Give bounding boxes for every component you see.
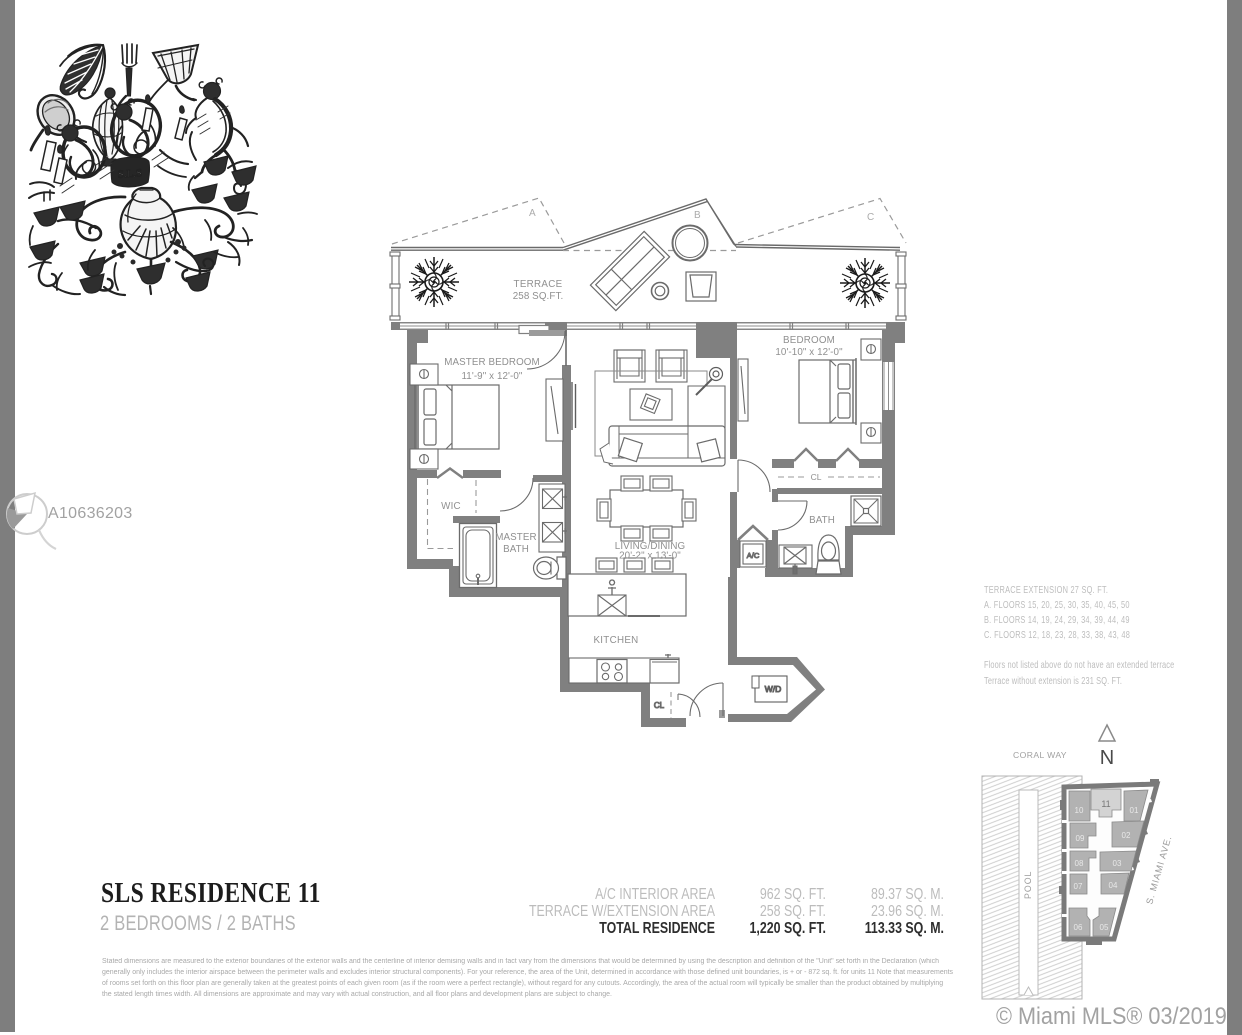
svg-text:11: 11 (1101, 799, 1110, 809)
svg-text:BATH: BATH (503, 544, 529, 555)
svg-text:BEDROOM: BEDROOM (783, 335, 835, 346)
svg-text:W/D: W/D (765, 684, 782, 694)
svg-text:WIC: WIC (441, 501, 461, 512)
svg-text:KITCHEN: KITCHEN (593, 635, 638, 646)
svg-text:10: 10 (1075, 806, 1084, 815)
svg-text:TERRACE: TERRACE (514, 279, 563, 290)
svg-text:MASTER BEDROOM: MASTER BEDROOM (444, 357, 540, 368)
svg-text:C: C (867, 212, 874, 223)
svg-text:06: 06 (1074, 923, 1083, 932)
svg-text:BATH: BATH (809, 515, 835, 526)
svg-text:MASTER: MASTER (495, 532, 536, 543)
svg-text:05: 05 (1100, 923, 1109, 932)
svg-text:POOL: POOL (1023, 871, 1033, 899)
svg-text:CL: CL (811, 472, 822, 482)
svg-text:N: N (1100, 747, 1114, 769)
svg-text:CL: CL (654, 701, 665, 710)
svg-text:CORAL WAY: CORAL WAY (1013, 750, 1067, 760)
svg-text:07: 07 (1074, 882, 1083, 891)
svg-text:S. MIAMI AVE.: S. MIAMI AVE. (1144, 834, 1173, 905)
svg-text:01: 01 (1130, 806, 1139, 815)
svg-text:A: A (529, 208, 536, 219)
svg-text:10'-10" x 12'-0": 10'-10" x 12'-0" (775, 347, 843, 358)
svg-text:11'-9" x 12'-0": 11'-9" x 12'-0" (461, 371, 522, 382)
svg-text:02: 02 (1122, 831, 1131, 840)
svg-text:08: 08 (1075, 859, 1084, 868)
svg-text:A/C: A/C (747, 551, 760, 560)
svg-text:03: 03 (1113, 859, 1122, 868)
svg-text:258 SQ.FT.: 258 SQ.FT. (513, 291, 564, 302)
svg-text:09: 09 (1076, 834, 1085, 843)
svg-text:S.L.S: S.L.S (117, 167, 142, 181)
svg-text:04: 04 (1109, 881, 1118, 890)
svg-text:B: B (694, 210, 701, 221)
svg-text:20'-2" x 13'-0": 20'-2" x 13'-0" (619, 551, 681, 562)
